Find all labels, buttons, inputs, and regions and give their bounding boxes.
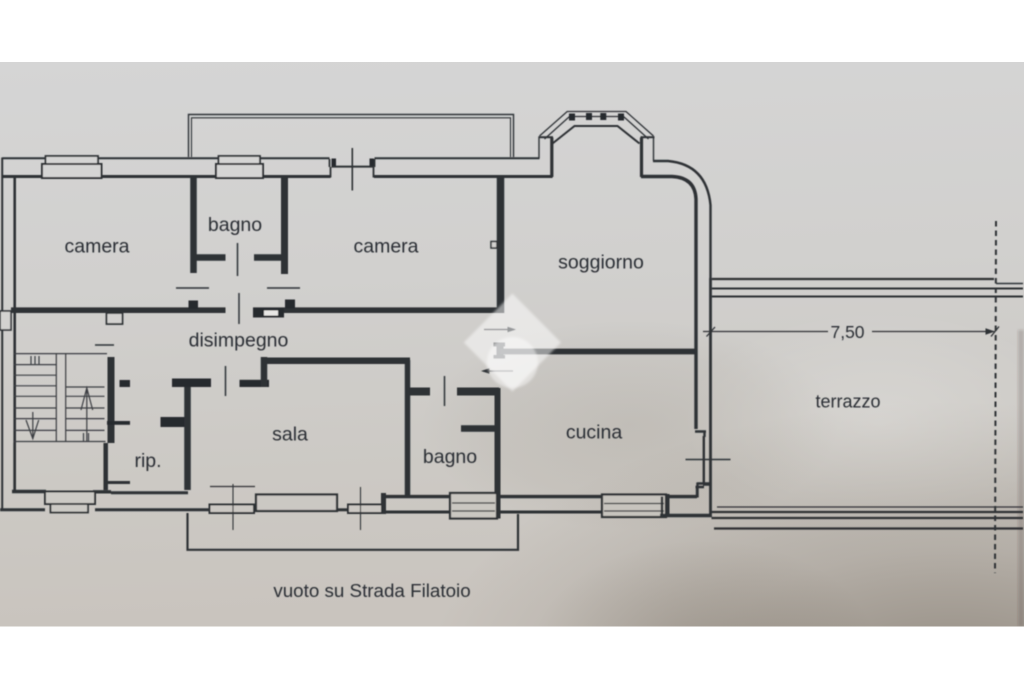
svg-text:rip.: rip. [134, 450, 161, 472]
svg-text:terrazzo: terrazzo [815, 392, 880, 412]
svg-text:soggiorno: soggiorno [558, 252, 644, 274]
svg-text:bagno: bagno [208, 214, 262, 236]
svg-text:disimpegno: disimpegno [189, 330, 289, 352]
svg-text:camera: camera [353, 236, 418, 258]
svg-text:sala: sala [272, 424, 308, 446]
svg-text:7,50: 7,50 [830, 322, 864, 342]
svg-text:cucina: cucina [566, 422, 623, 444]
svg-text:vuoto su Strada Filatoio: vuoto su Strada Filatoio [273, 580, 470, 601]
svg-text:camera: camera [64, 236, 129, 258]
svg-text:bagno: bagno [423, 446, 477, 468]
